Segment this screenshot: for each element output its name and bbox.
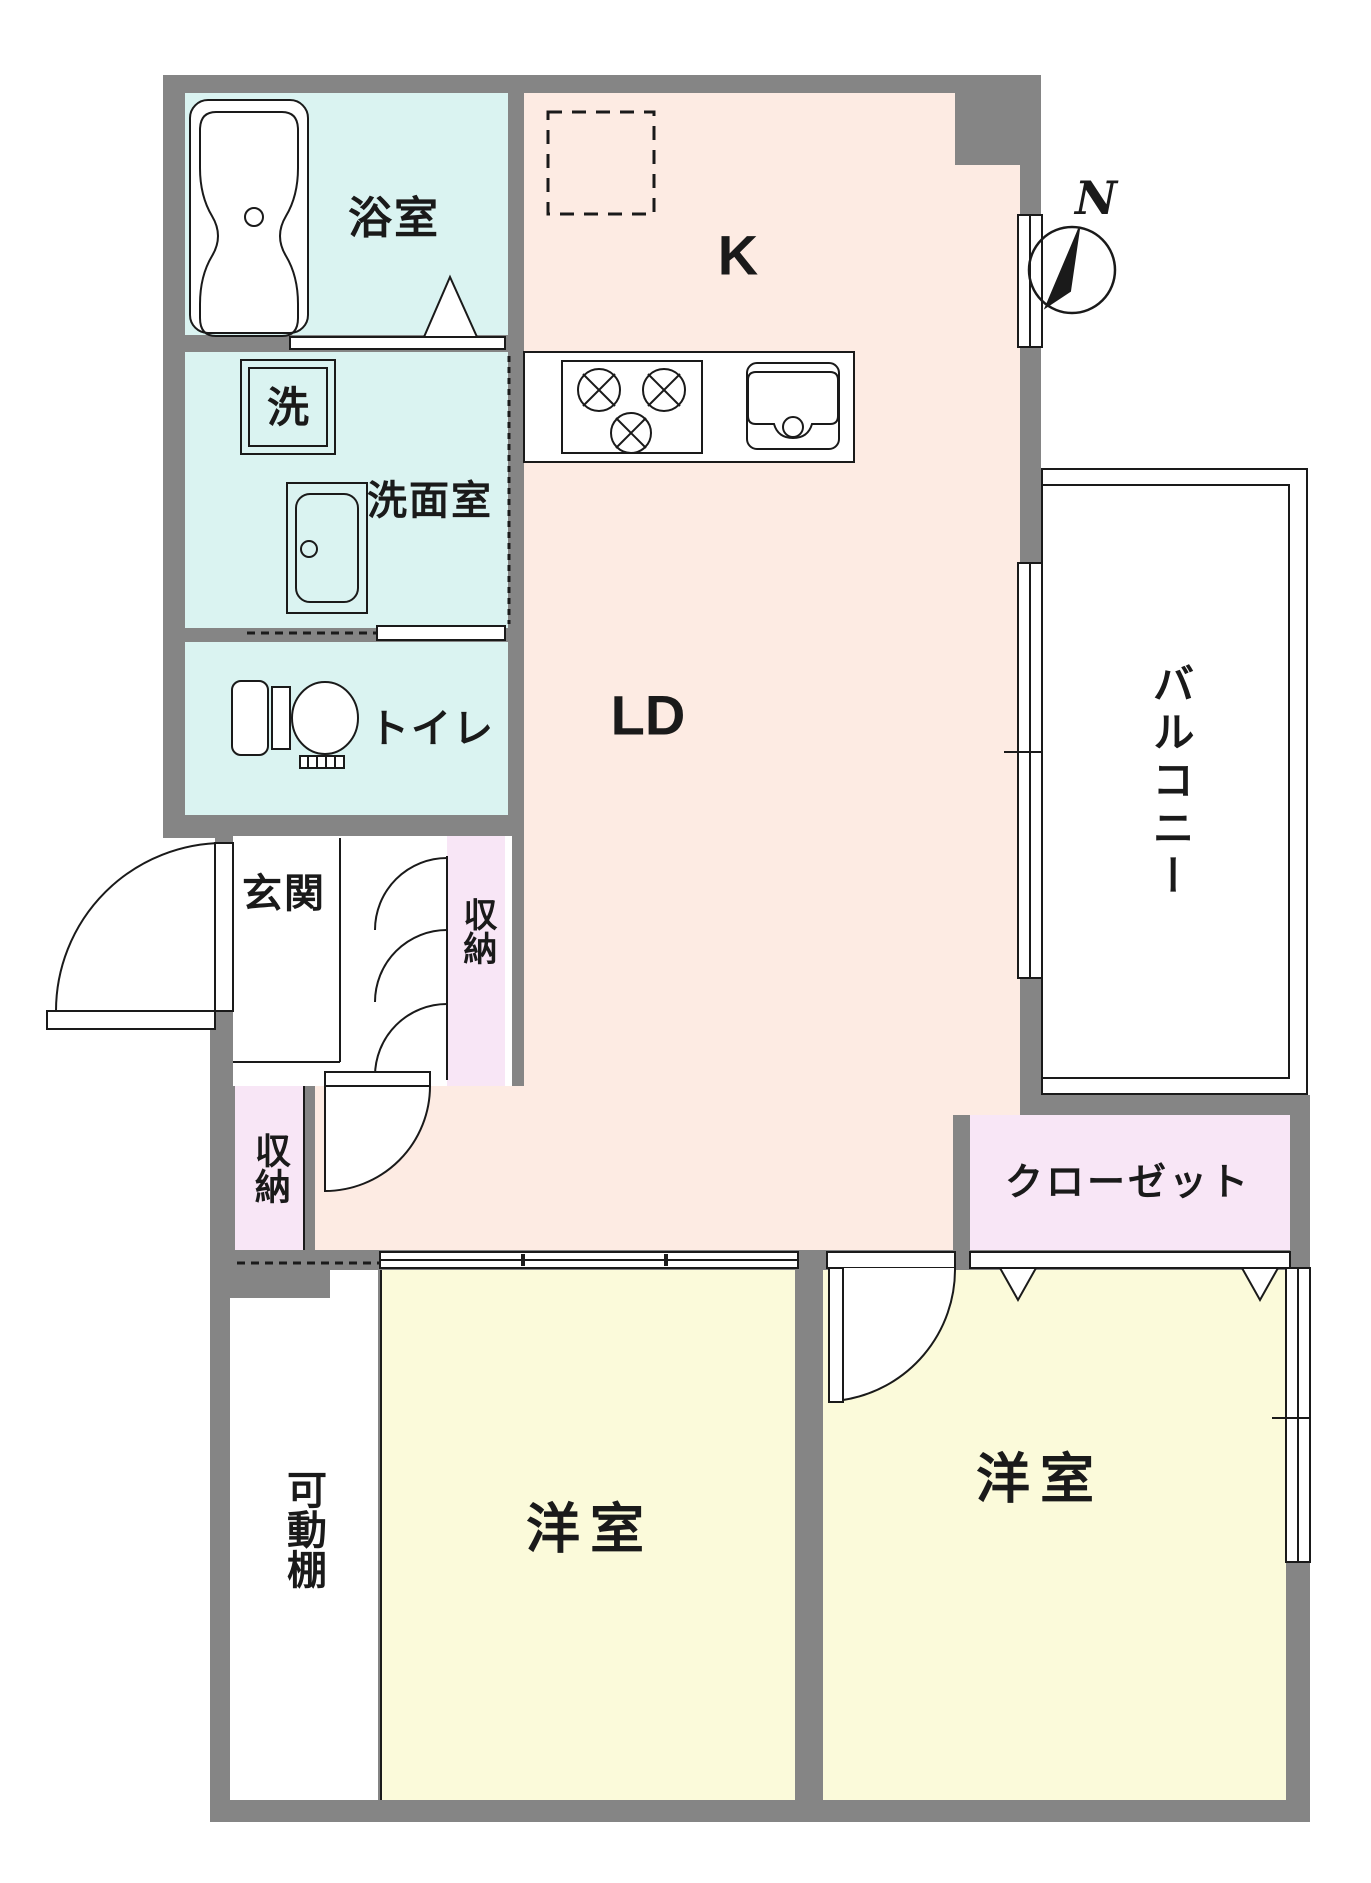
label-bath: 浴室 — [348, 196, 440, 242]
label-toilet: トイレ — [369, 708, 495, 750]
room-bedroom2 — [823, 1270, 1286, 1800]
label-shelf: 可動棚 — [282, 1469, 324, 1589]
entrance-door-gap — [163, 838, 215, 1015]
compass-icon — [1029, 227, 1115, 313]
label-balcony: バルコニー — [1148, 662, 1192, 902]
label-bedroom1: 洋室 — [526, 1502, 654, 1559]
label-entrance: 玄関 — [242, 873, 326, 915]
label-living: LD — [611, 687, 686, 746]
room-living-lower — [315, 1086, 953, 1250]
label-bedroom2: 洋室 — [976, 1452, 1104, 1509]
label-washroom: 洗面室 — [367, 480, 493, 522]
room-living-main — [524, 165, 1020, 1115]
floorplan-canvas: 浴室 洗 洗面室 トイレ 玄関 収納 収納 K LD バルコニー クローゼット … — [0, 0, 1371, 1883]
label-storage2: 収納 — [251, 1132, 289, 1204]
room-kitchen-strip — [524, 93, 955, 165]
label-closet: クローゼット — [1005, 1164, 1251, 1204]
label-north: N — [1075, 174, 1117, 222]
room-bath — [185, 93, 508, 335]
wall-shelf-stub — [230, 1270, 330, 1298]
label-storage1: 収納 — [458, 897, 494, 965]
label-washer: 洗 — [267, 386, 309, 430]
label-kitchen: K — [718, 227, 758, 286]
